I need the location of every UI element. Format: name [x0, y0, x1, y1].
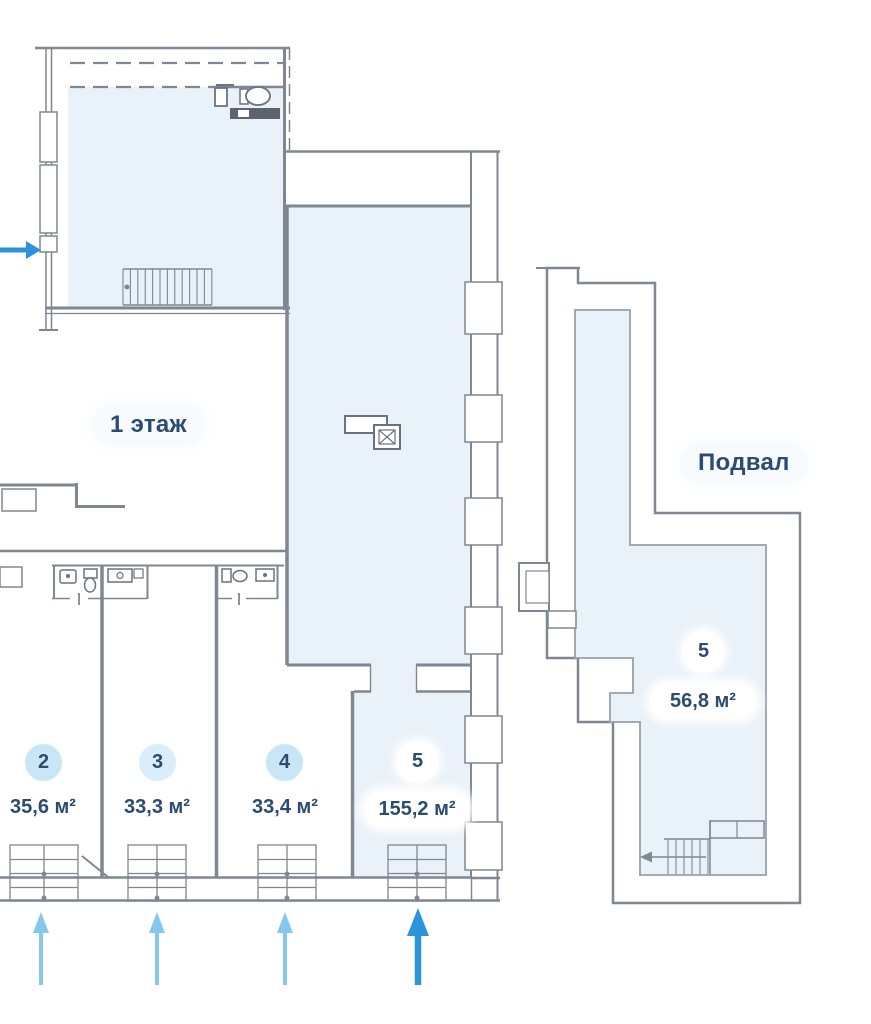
unit-badge-3[interactable]: 3 [139, 744, 176, 781]
unit-badge-5[interactable]: 5 [396, 740, 439, 783]
entrance-arrow-left-icon [0, 241, 41, 259]
entrance-arrow-icon [33, 912, 49, 985]
window-well-icon [519, 563, 576, 628]
basement-unit-badge-5[interactable]: 5 [682, 630, 725, 673]
unit-area-4: 33,4 м² [235, 796, 335, 819]
unit-area-5: 155,2 м² [364, 791, 470, 827]
basement-plan [519, 268, 800, 903]
basement-label: Подвал [680, 442, 808, 484]
entrance-arrow-up-icons [33, 908, 429, 985]
entrance-arrow-icon [149, 912, 165, 985]
unit-badge-2[interactable]: 2 [25, 744, 62, 781]
basement-unit-area-5: 56,8 м² [650, 683, 756, 719]
basement-room-fill [575, 310, 766, 875]
entrance-arrow-icon-highlighted [407, 908, 429, 985]
unit-area-2: 35,6 м² [0, 796, 93, 819]
floor-plan: 1 этаж Подвал 2 35,6 м² 3 33,3 м² 4 33,4… [0, 0, 871, 1024]
entrance-arrow-icon [277, 912, 293, 985]
unit-area-3: 33,3 м² [107, 796, 207, 819]
floor1-label: 1 этаж [92, 404, 205, 446]
unit-badge-4[interactable]: 4 [266, 744, 303, 781]
plan-linework [0, 0, 871, 1024]
